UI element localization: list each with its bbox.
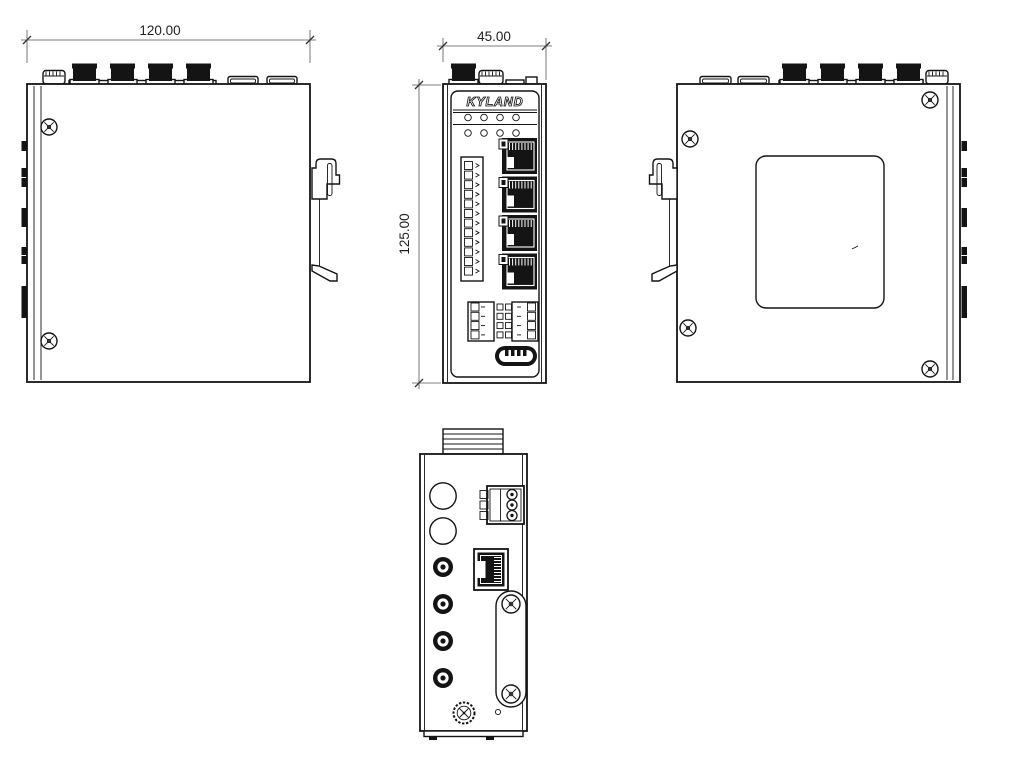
dimension-height: 125.00: [397, 79, 441, 389]
connector-bump: [962, 208, 968, 218]
left-body-outline: [27, 84, 310, 382]
connector-bump: [22, 141, 28, 151]
antenna-knob-body: [783, 67, 806, 81]
connector-bump: [962, 247, 968, 255]
phillips-screw: [682, 131, 698, 147]
rj45-port: [499, 254, 537, 290]
mechanical-drawing-canvas: 120.00 45.00 125.00: [0, 0, 1021, 772]
connector-bump: [22, 286, 28, 294]
connector-bump: [22, 218, 28, 227]
console-rj45-port: [474, 549, 508, 590]
connector-bump: [22, 294, 28, 318]
rj45-port: [499, 215, 537, 251]
connector-bump: [22, 208, 28, 218]
connector-bump: [962, 168, 968, 177]
antenna-knob-body: [149, 67, 172, 81]
sim-cover-plate: [496, 591, 526, 707]
phillips-screw: [41, 119, 57, 135]
phillips-screw: [502, 595, 520, 613]
grounding-screw: [454, 703, 475, 724]
connector-bump: [962, 218, 968, 227]
antenna-knob-body: [897, 67, 920, 81]
right-connector-bumps: [962, 141, 968, 318]
left-top-connectors: [43, 64, 297, 85]
phillips-screw: [922, 92, 938, 108]
antenna-hole-1: [430, 483, 456, 509]
din-rail-clip-right: [312, 159, 340, 281]
antenna-connector: [433, 668, 453, 688]
antenna-knob-body: [452, 67, 475, 81]
antenna-connector: [433, 631, 453, 651]
antenna-knob-body: [111, 67, 134, 81]
din-clip-profile: [443, 429, 503, 454]
bottom-view: [420, 429, 527, 740]
connector-bump: [962, 178, 968, 187]
antenna-knob-body: [859, 67, 882, 81]
right-top-connectors: [700, 64, 948, 85]
label-area: [756, 156, 884, 308]
antenna-hole-2: [430, 518, 456, 544]
phillips-screw: [922, 361, 938, 377]
connector-bump: [22, 168, 28, 177]
dimension-width-label: 120.00: [139, 23, 180, 38]
connector-bump: [962, 294, 968, 318]
phillips-screw: [680, 320, 696, 336]
phillips-screw: [41, 333, 57, 349]
antenna-knob-body: [73, 67, 96, 81]
connector-bump: [22, 247, 28, 255]
rj45-port: [499, 138, 537, 174]
usb-port: [495, 346, 537, 366]
antenna-knob-body: [187, 67, 210, 81]
dimension-height-label: 125.00: [397, 213, 412, 254]
connector-bump: [962, 141, 968, 151]
bottom-edge-strip: [424, 731, 523, 737]
din-rail-clip-left: [650, 159, 678, 281]
blank-cover: [526, 77, 537, 84]
antenna-knob-body: [821, 67, 844, 81]
antenna-connector: [433, 557, 453, 577]
connector-bump: [962, 286, 968, 294]
left-side-view: 120.00: [21, 23, 340, 382]
drawing-svg: 120.00 45.00 125.00: [0, 0, 1021, 772]
dimension-depth-label: 45.00: [477, 29, 511, 44]
antenna-connector: [433, 594, 453, 614]
dimension-width: 120.00: [21, 23, 316, 63]
front-top-connectors: [449, 64, 537, 85]
connector-bump: [22, 256, 28, 264]
right-side-view: [650, 64, 968, 383]
phillips-screw: [502, 685, 520, 703]
connector-bump: [962, 256, 968, 264]
brand-logo: KYLAND: [467, 95, 524, 109]
power-terminal-3pin: [480, 486, 524, 524]
connector-bump: [22, 178, 28, 187]
front-view: 45.00 125.00 KYLAND: [397, 29, 552, 389]
rj45-port: [499, 177, 537, 213]
